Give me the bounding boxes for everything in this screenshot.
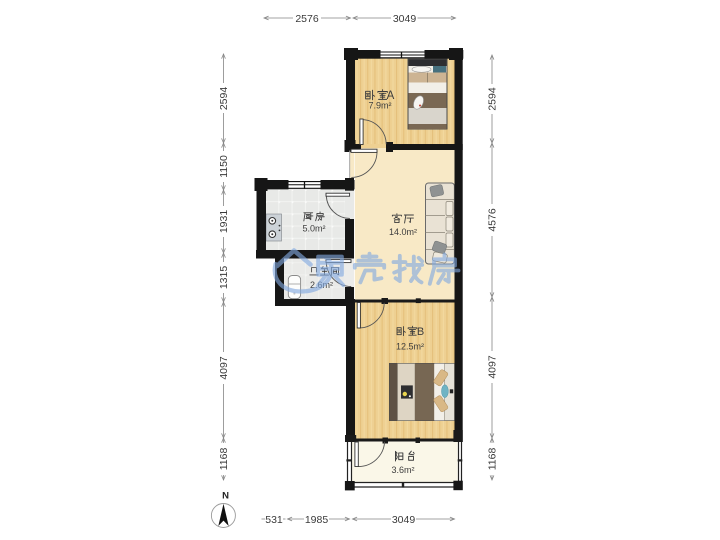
svg-text:2594: 2594 [218, 87, 230, 111]
svg-text:2576: 2576 [295, 13, 319, 25]
svg-text:12.5m²: 12.5m² [396, 341, 424, 351]
svg-text:14.0m²: 14.0m² [389, 227, 417, 237]
svg-text:531: 531 [265, 514, 283, 526]
svg-text:B: B [417, 326, 424, 338]
svg-text:3049: 3049 [392, 514, 416, 526]
svg-text:3049: 3049 [393, 13, 417, 25]
svg-text:1150: 1150 [218, 155, 230, 178]
svg-text:N: N [222, 491, 229, 502]
svg-text:1168: 1168 [218, 448, 230, 471]
svg-text:3.6m²: 3.6m² [391, 465, 414, 475]
svg-text:4576: 4576 [487, 208, 499, 232]
svg-text:1168: 1168 [487, 448, 499, 471]
svg-text:4097: 4097 [218, 356, 230, 380]
svg-text:2594: 2594 [487, 87, 499, 111]
svg-text:4097: 4097 [487, 355, 499, 379]
svg-text:7.9m²: 7.9m² [368, 101, 391, 111]
svg-text:1931: 1931 [218, 210, 230, 234]
svg-text:5.0m²: 5.0m² [302, 224, 325, 234]
svg-text:1985: 1985 [305, 514, 329, 526]
svg-text:1315: 1315 [218, 266, 230, 290]
